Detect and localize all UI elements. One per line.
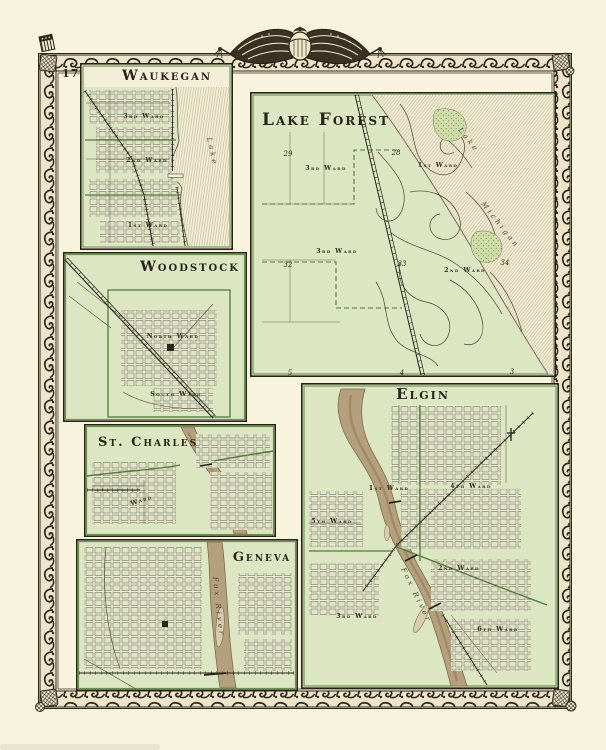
- crest-icon: [289, 27, 311, 60]
- ward-label: 3rd Ward: [123, 113, 165, 120]
- section-number: 5: [288, 369, 293, 377]
- atlas-page: 17: [0, 0, 606, 750]
- panel-elgin: Elgin 1st Ward 4th Ward 5th Ward 2nd War…: [301, 383, 559, 689]
- ward-label: 2nd Ward: [126, 157, 168, 164]
- panel-geneva: Geneva Fox River: [76, 539, 298, 691]
- ward-label: North Ward: [147, 333, 199, 340]
- flags-crest-ornament: [214, 27, 386, 64]
- panel-title: St. Charles: [98, 435, 198, 450]
- scan-artifact: [0, 744, 160, 750]
- river-island: [384, 525, 389, 541]
- panel-waukegan: Waukegan 3rd Ward 2nd Ward 1st Ward Lake: [80, 63, 233, 250]
- panel-title: Woodstock: [139, 259, 240, 275]
- ward-label: 4th Ward: [450, 483, 492, 490]
- panel-title: Geneva: [233, 550, 291, 565]
- section-number: 28: [391, 149, 401, 157]
- public-square: [162, 621, 168, 627]
- ward-label: 6th Ward: [477, 626, 519, 633]
- ward-label: 3rd Ward: [305, 165, 347, 172]
- panel-st-charles: St. Charles Ward: [84, 424, 276, 537]
- panel-title: Lake Forest: [262, 110, 390, 130]
- ward-label: 3rd Ward: [316, 248, 358, 255]
- page-number: 17: [62, 67, 79, 80]
- ward-label: 1st Ward: [418, 162, 459, 169]
- panel-title: Elgin: [396, 385, 450, 403]
- ward-label: 5th Ward: [311, 518, 353, 525]
- section-number: 29: [283, 150, 293, 158]
- section-number: 3: [510, 368, 515, 376]
- ward-label: South Ward: [150, 391, 201, 398]
- ward-label: 2nd Ward: [444, 267, 486, 274]
- ward-label: 1st Ward: [128, 222, 169, 229]
- ward-label: 1st Ward: [369, 485, 410, 492]
- section-number: 4: [399, 369, 404, 377]
- section-number: 34: [501, 259, 510, 267]
- corner-ornament-bottom-right: [552, 689, 576, 711]
- courthouse-square: [167, 344, 174, 351]
- ward-label: 2nd Ward: [438, 565, 480, 572]
- section-number: 32: [284, 261, 293, 269]
- section-number: 33: [398, 260, 407, 268]
- panel-woodstock: Woodstock North Ward South Ward: [63, 252, 247, 422]
- ward-label: 3rd Ward: [336, 613, 378, 620]
- panel-lake-forest: Lake Forest 3rd Ward 1st Ward 3rd Ward 2…: [250, 92, 556, 377]
- pier: [168, 174, 183, 177]
- panel-title: Waukegan: [121, 68, 212, 84]
